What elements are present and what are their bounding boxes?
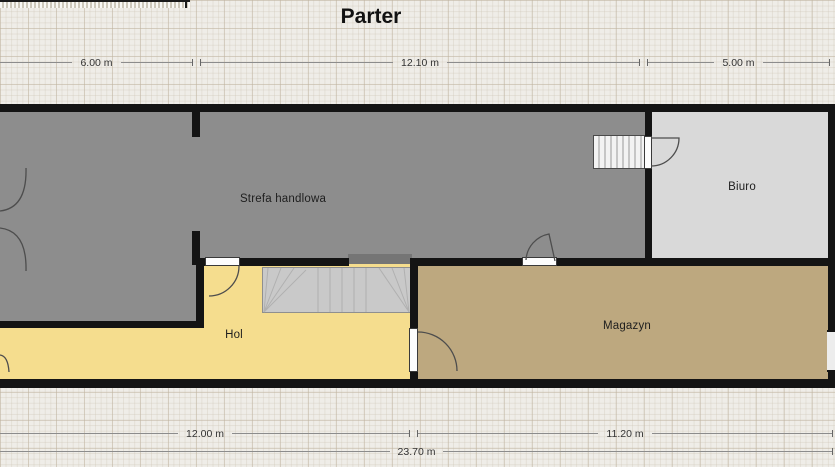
wall-magazyn-top[interactable]	[415, 258, 835, 266]
room-hol-lower[interactable]	[0, 324, 210, 381]
dimension-tick	[417, 430, 418, 437]
dimension-top-left: 6.00 m	[0, 56, 193, 69]
dimension-label: 23.70 m	[390, 446, 444, 458]
dimension-tick	[647, 59, 648, 66]
dimension-label: 11.20 m	[598, 428, 651, 440]
dimension-tick	[829, 59, 830, 66]
top-ruler-tick	[185, 0, 187, 8]
top-ruler-artifact	[0, 0, 190, 8]
door-hol-magazyn[interactable]	[409, 328, 418, 372]
dimension-label: 12.10 m	[393, 57, 447, 69]
dimension-bottom-right: 11.20 m	[417, 427, 833, 440]
floorplan-canvas[interactable]: Parter 6.00 m 12.10 m 5.00 m	[0, 0, 835, 467]
dimension-label: 6.00 m	[72, 57, 120, 69]
room-strefa-handlowa[interactable]	[192, 112, 652, 265]
window-magazyn-right[interactable]	[827, 330, 835, 372]
dimension-label: 12.00 m	[178, 428, 232, 440]
room-unlabeled-left[interactable]	[0, 112, 200, 322]
wall-biuro-left[interactable]	[645, 110, 652, 258]
stairs-opening-band	[348, 254, 412, 264]
wall-hol-top-east[interactable]	[239, 258, 349, 266]
wall-bottom[interactable]	[0, 379, 835, 388]
door-strefa-magazyn[interactable]	[522, 257, 557, 266]
dimension-tick	[639, 59, 640, 66]
stairs-biuro[interactable]	[593, 135, 646, 169]
dimension-total: 23.70 m	[0, 445, 833, 458]
wall-leftroom-bottom[interactable]	[0, 321, 204, 328]
door-strefa-hol[interactable]	[205, 257, 240, 266]
room-label-magazyn: Magazyn	[603, 320, 651, 332]
wall-top[interactable]	[0, 104, 835, 112]
room-label-biuro: Biuro	[728, 181, 756, 193]
dimension-top-middle: 12.10 m	[200, 56, 640, 69]
wall-partition-upper[interactable]	[192, 112, 200, 137]
dimension-tick	[832, 430, 833, 437]
dimension-tick	[832, 448, 833, 455]
dimension-label: 5.00 m	[714, 57, 762, 69]
dimension-tick	[200, 59, 201, 66]
stairs-hol[interactable]	[262, 267, 411, 313]
dimension-tick	[409, 430, 410, 437]
room-label-hol: Hol	[225, 329, 243, 341]
dimension-tick	[192, 59, 193, 66]
door-biuro[interactable]	[644, 136, 652, 169]
room-label-strefa: Strefa handlowa	[240, 193, 326, 205]
dimension-top-right: 5.00 m	[647, 56, 830, 69]
dimension-bottom-left: 12.00 m	[0, 427, 410, 440]
page-title: Parter	[341, 5, 402, 29]
wall-hol-left[interactable]	[196, 260, 204, 326]
